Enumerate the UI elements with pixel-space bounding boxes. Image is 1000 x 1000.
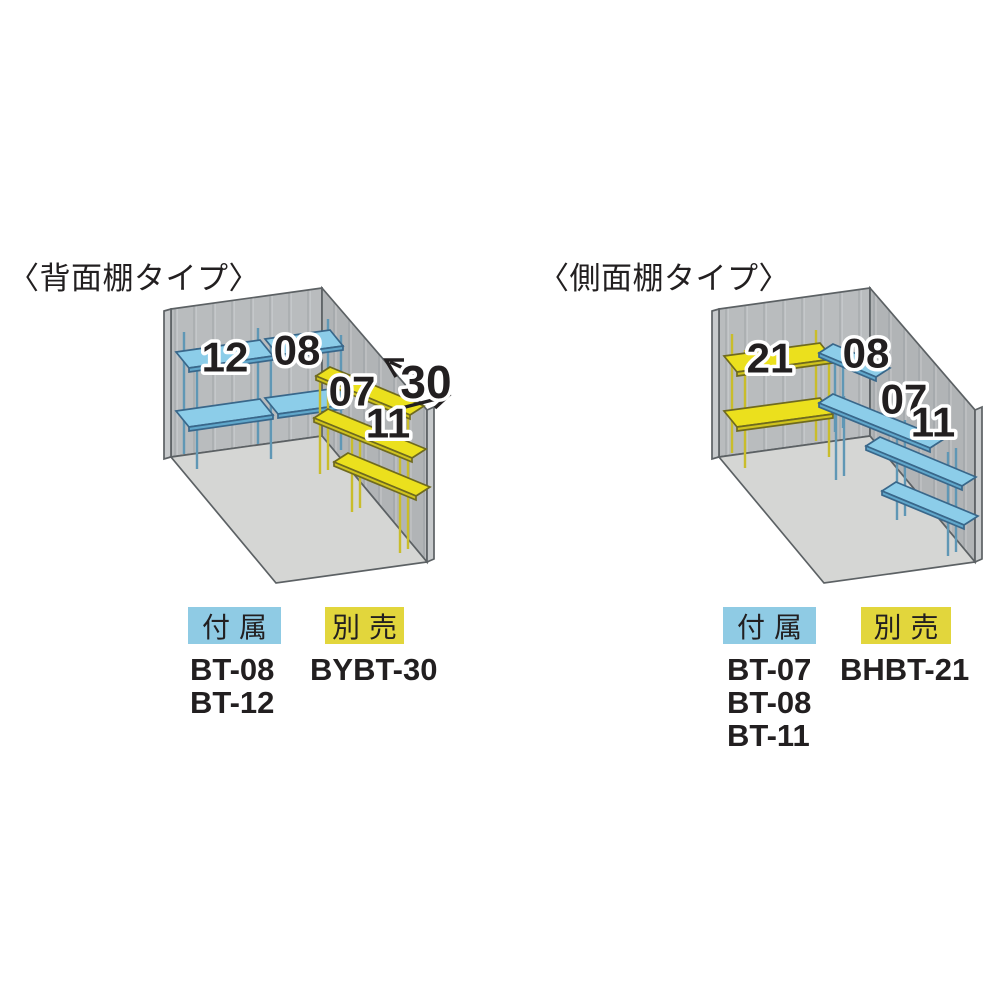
code-item: BT-08 (190, 653, 274, 686)
side-shelf-diagram: 21 08 07 11 (712, 288, 982, 583)
badge-label: 付属 (202, 606, 276, 646)
board-label-11: 11 (911, 399, 955, 446)
code-item: BHBT-21 (840, 653, 969, 686)
code-item: BT-12 (190, 686, 274, 719)
diagram-title-back: 〈背面棚タイプ〉 (8, 253, 260, 298)
side-wall-front-edge (427, 407, 434, 562)
legend-badge-optional-back: 別売 (325, 607, 404, 644)
board-label-12: 12 (202, 334, 249, 381)
badge-label: 別売 (873, 606, 947, 646)
optional-codes-side: BHBT-21 (840, 653, 969, 686)
shed-shelf-diagrams: 12 08 07 11 30 (0, 0, 1000, 1000)
code-item: BYBT-30 (310, 653, 437, 686)
end-wall-edge (712, 309, 719, 459)
board-label-08: 08 (274, 327, 321, 374)
legend-badge-included-back: 付属 (188, 607, 281, 644)
badge-label: 付属 (737, 606, 811, 646)
code-item: BT-11 (727, 719, 811, 752)
included-codes-side: BT-07 BT-08 BT-11 (727, 653, 811, 752)
legend-badge-optional-side: 別売 (861, 607, 951, 644)
back-shelf-diagram: 12 08 07 11 30 (164, 288, 452, 583)
board-label-21: 21 (747, 335, 794, 382)
code-item: BT-07 (727, 653, 811, 686)
diagram-title-side: 〈側面棚タイプ〉 (538, 253, 790, 298)
code-item: BT-08 (727, 686, 811, 719)
board-label-08: 08 (843, 330, 890, 377)
page: 12 08 07 11 30 (0, 0, 1000, 1000)
badge-label: 別売 (332, 606, 406, 646)
end-wall-edge (164, 309, 171, 459)
side-wall-front-edge (975, 407, 982, 562)
optional-codes-back: BYBT-30 (310, 653, 437, 686)
included-codes-back: BT-08 BT-12 (190, 653, 274, 719)
dimension-label-30: 30 (400, 356, 451, 408)
legend-badge-included-side: 付属 (723, 607, 816, 644)
